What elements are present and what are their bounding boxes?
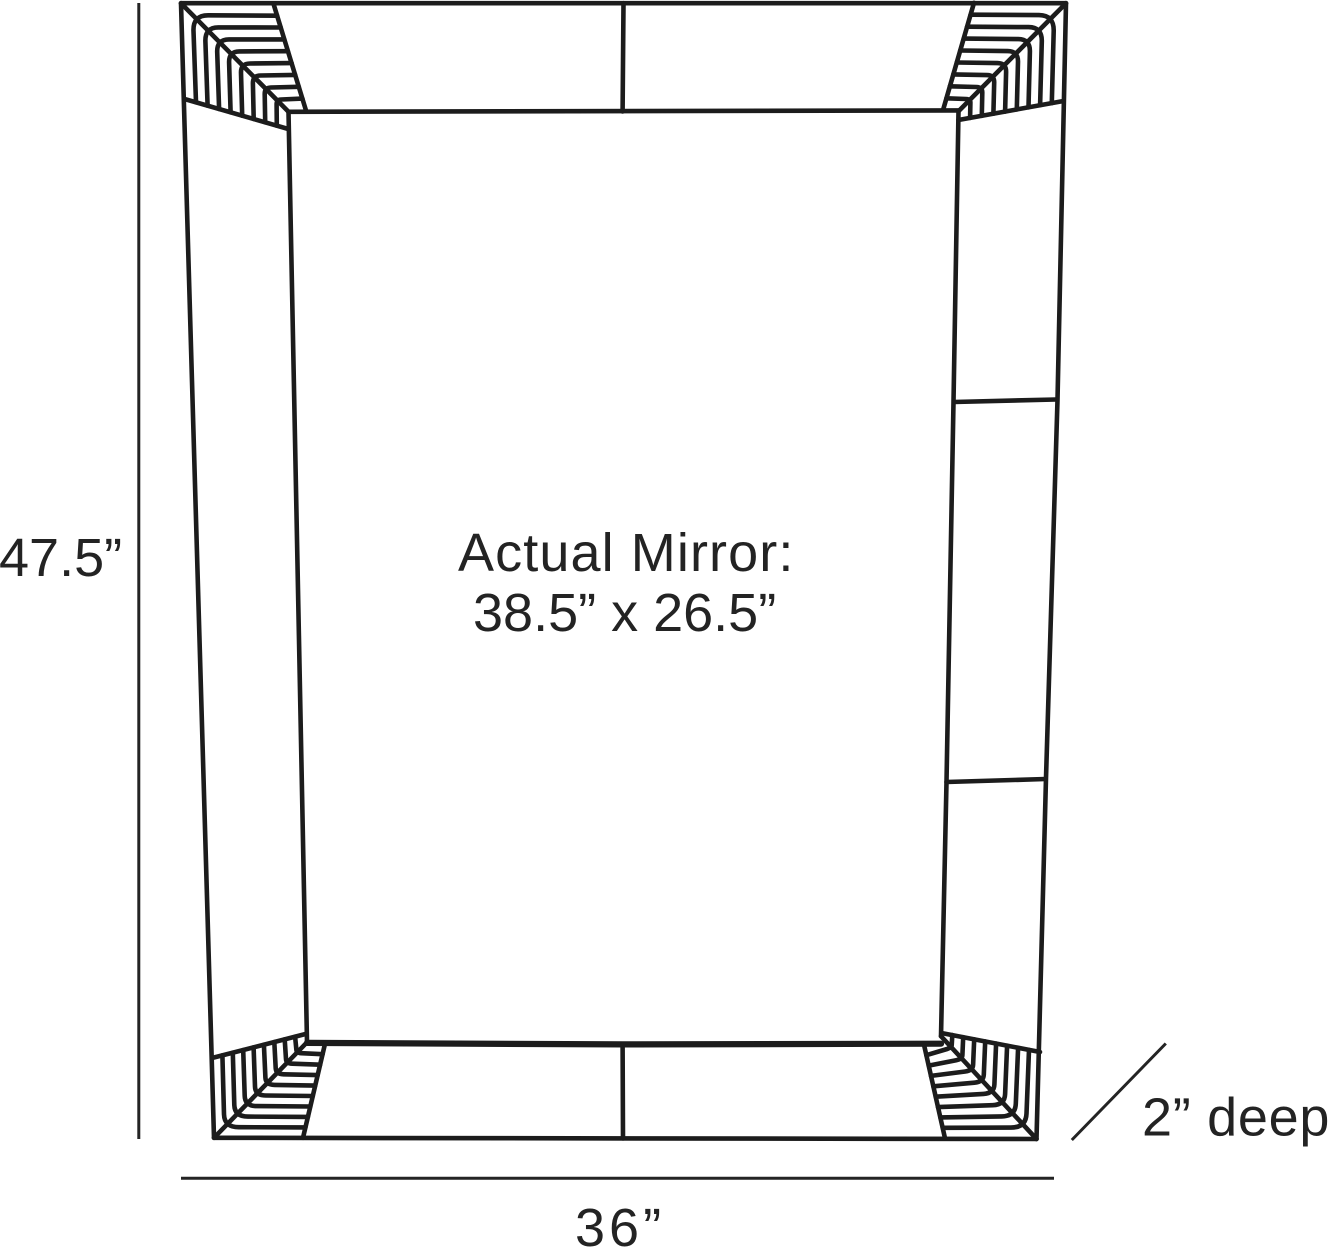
svg-text:36”: 36” [575, 1198, 665, 1251]
svg-text:Actual Mirror:: Actual Mirror: [458, 523, 794, 583]
svg-text:47.5”: 47.5” [0, 528, 122, 588]
svg-text:38.5” x 26.5”: 38.5” x 26.5” [473, 583, 776, 643]
svg-text:2” deep: 2” deep [1142, 1088, 1329, 1148]
